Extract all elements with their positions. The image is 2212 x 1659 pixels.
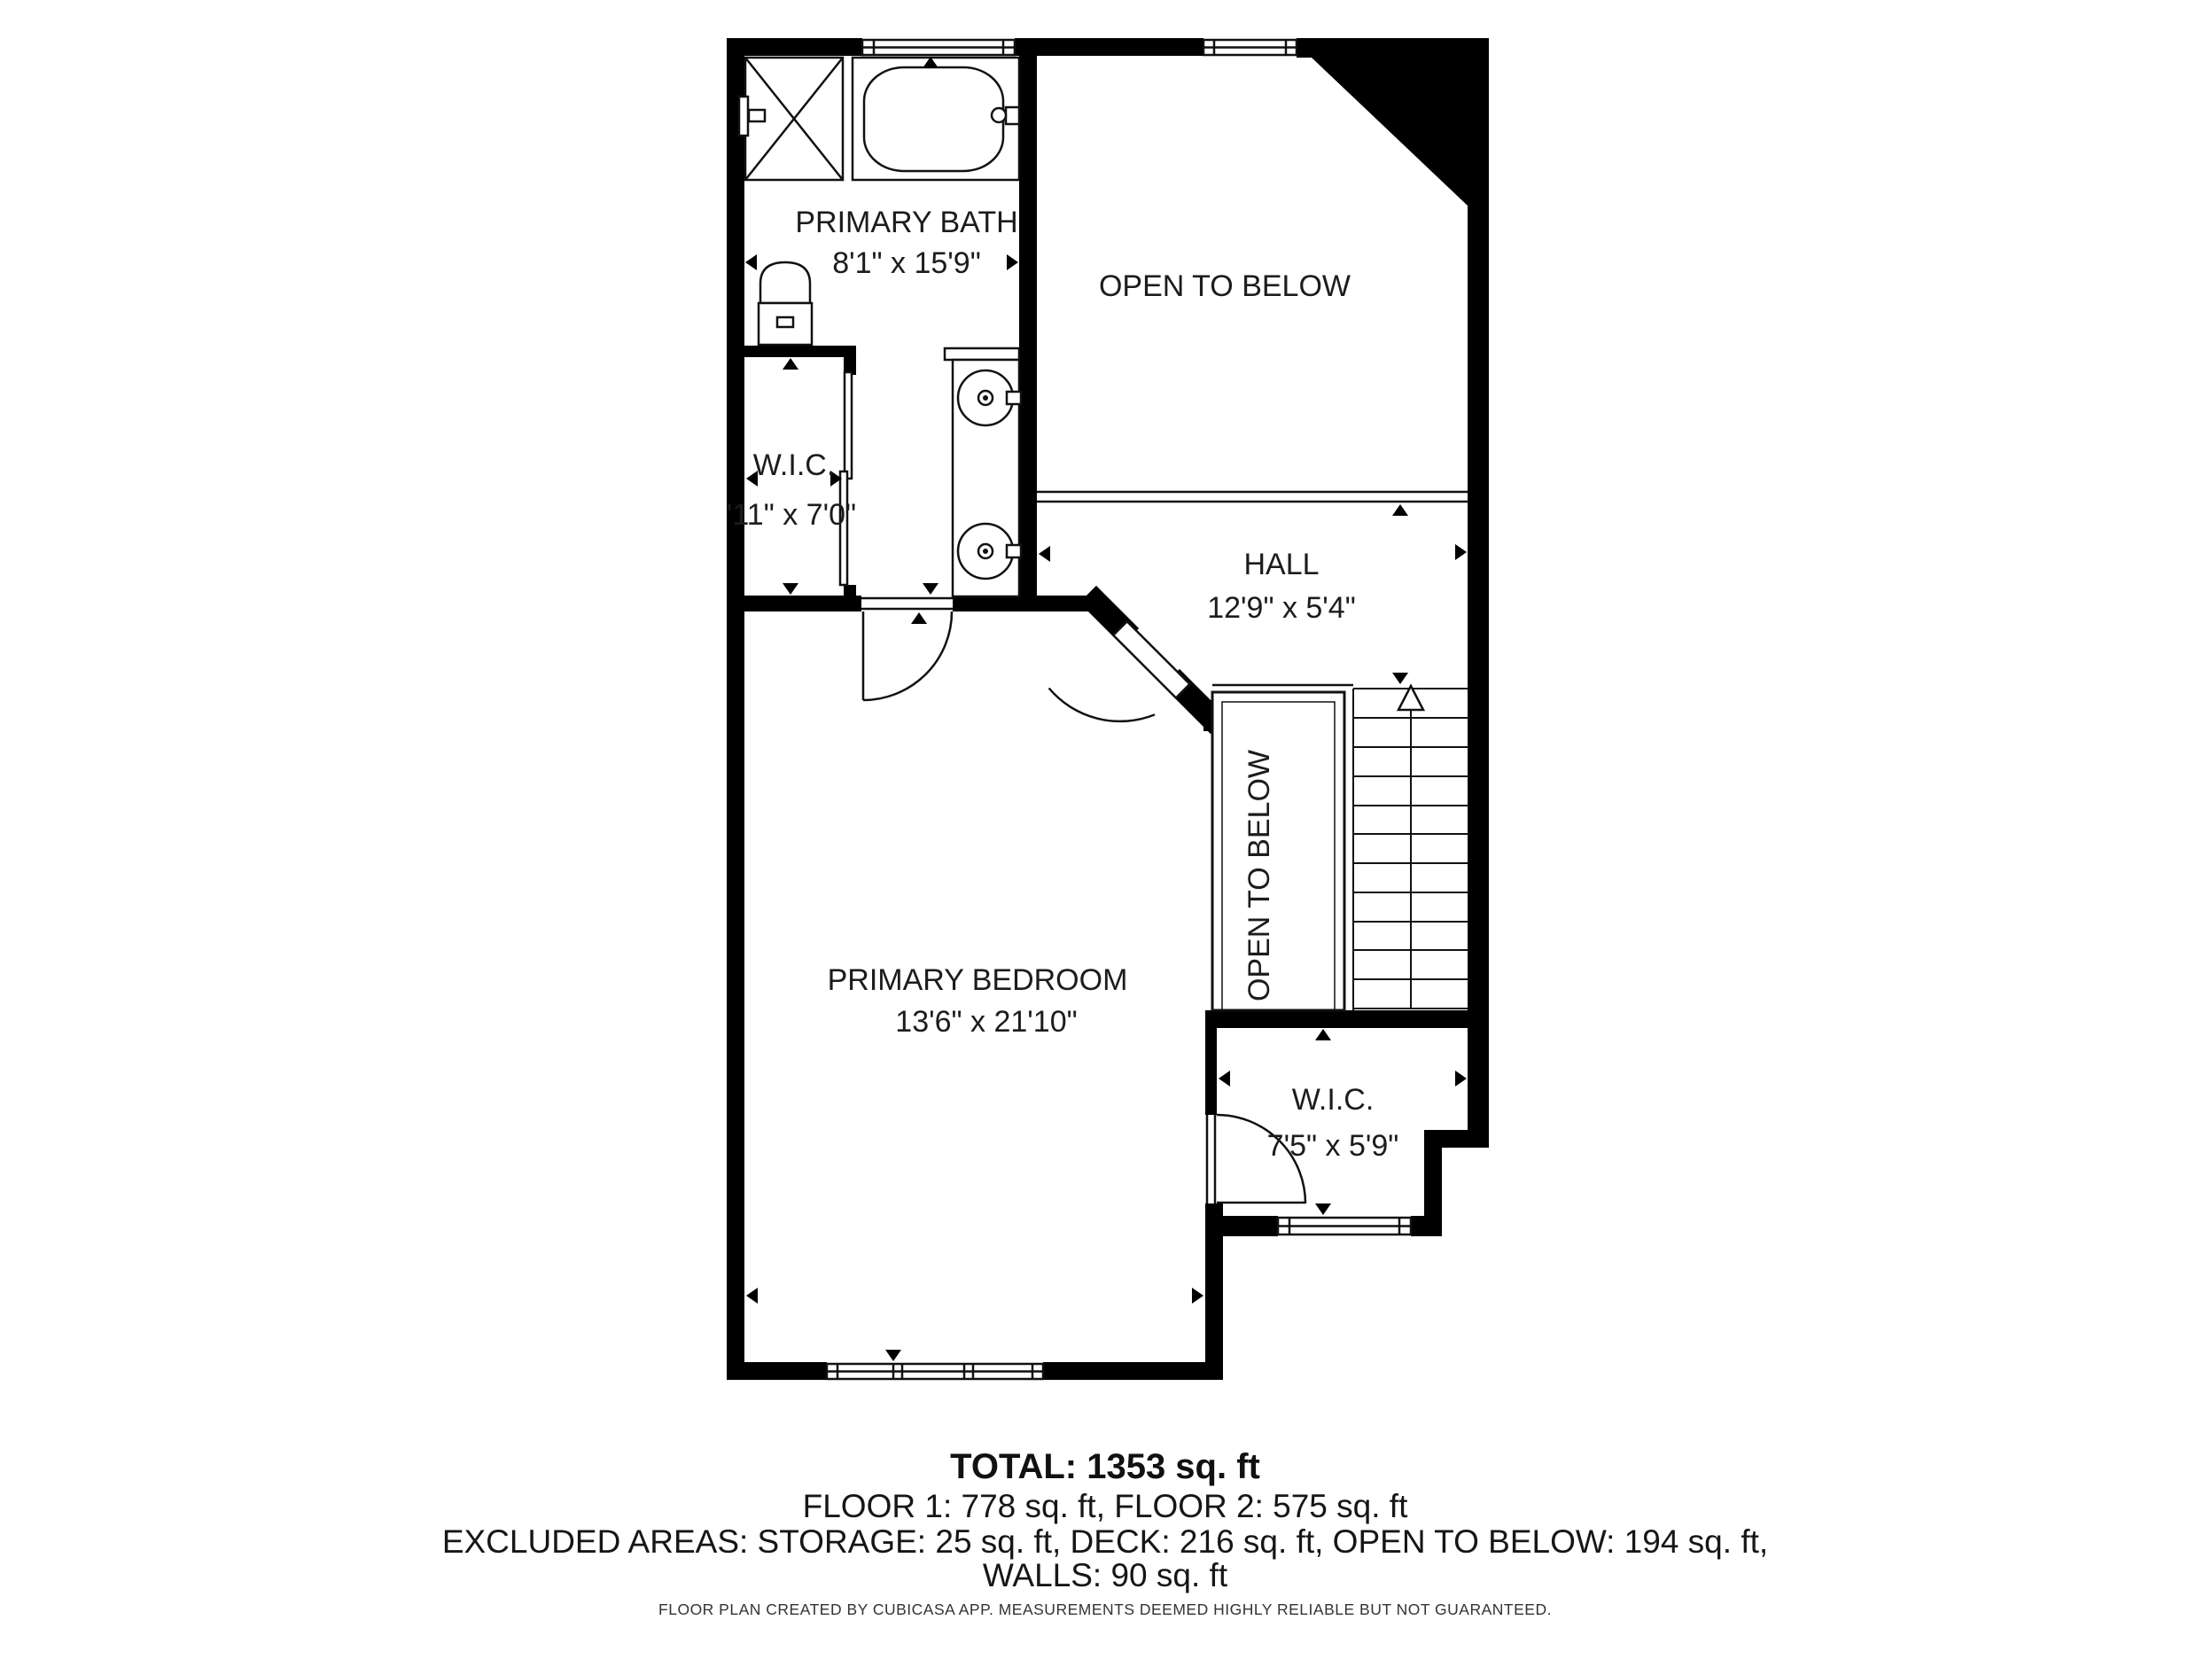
walls-group — [727, 38, 1489, 1380]
floor-plan-page: PRIMARY BATH 8'1" x 15'9" OPEN TO BELOW … — [0, 0, 2212, 1659]
room-label-primary-bedroom: PRIMARY BEDROOM — [828, 963, 1128, 997]
stair-well — [1212, 692, 1344, 1010]
window-open-below — [1203, 40, 1297, 55]
window-wic-bottom — [1278, 1218, 1411, 1235]
stairs-direction-arrow — [1398, 686, 1423, 710]
room-label-open-to-below-stairs: OPEN TO BELOW — [1242, 750, 1276, 1001]
room-label-open-to-below-top: OPEN TO BELOW — [1099, 269, 1351, 303]
window-bedroom — [827, 1364, 1043, 1379]
room-dims-primary-bath: 8'1" x 15'9" — [832, 246, 981, 280]
vanity-fixture — [945, 348, 1021, 596]
footer-walls: WALLS: 90 sq. ft — [983, 1557, 1228, 1593]
footer-total: TOTAL: 1353 sq. ft — [950, 1447, 1260, 1486]
room-dims-hall: 12'9" x 5'4" — [1207, 591, 1356, 625]
room-label-primary-bath: PRIMARY BATH — [795, 206, 1017, 239]
shower-fixture — [739, 58, 843, 180]
room-dims-wic-bottom: 7'5" x 5'9" — [1267, 1129, 1399, 1163]
door-bedroom-diagonal — [1049, 621, 1190, 721]
railing-group — [1037, 492, 1468, 685]
room-label-wic-left: W.I.C. — [753, 448, 836, 482]
room-dims-primary-bedroom: 13'6" x 21'10" — [895, 1005, 1077, 1039]
room-dims-wic-left: '11" x 7'0" — [727, 498, 856, 532]
door-bath — [861, 598, 953, 700]
footer-excluded: EXCLUDED AREAS: STORAGE: 25 sq. ft, DECK… — [442, 1523, 1768, 1560]
footer-floors: FLOOR 1: 778 sq. ft, FLOOR 2: 575 sq. ft — [803, 1488, 1408, 1524]
floor-plan-svg: PRIMARY BATH 8'1" x 15'9" OPEN TO BELOW … — [0, 0, 2212, 1659]
stairs — [1353, 686, 1468, 1010]
footer-disclaimer: FLOOR PLAN CREATED BY CUBICASA APP. MEAS… — [658, 1601, 1552, 1618]
window-bath — [862, 40, 1015, 55]
room-label-hall: HALL — [1243, 548, 1319, 581]
footer-group: TOTAL: 1353 sq. ft FLOOR 1: 778 sq. ft, … — [442, 1447, 1768, 1618]
toilet-fixture — [759, 262, 812, 345]
bathtub-fixture — [853, 58, 1019, 180]
room-label-wic-bottom: W.I.C. — [1292, 1083, 1375, 1117]
